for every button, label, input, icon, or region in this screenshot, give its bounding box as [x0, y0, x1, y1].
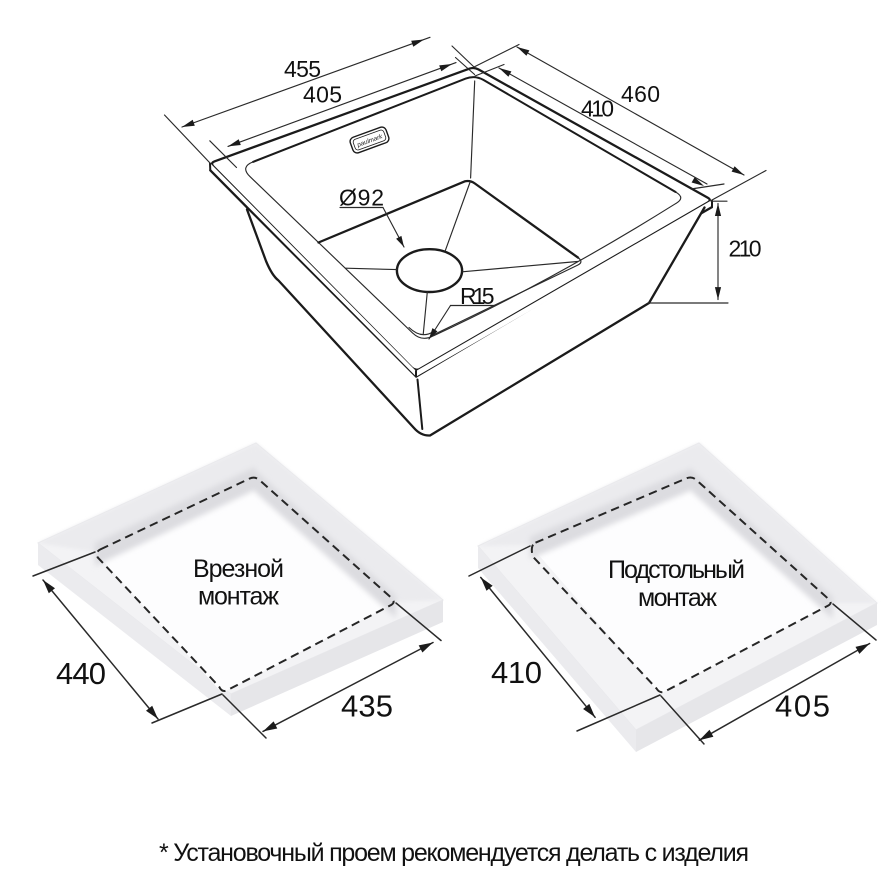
- svg-text:Ø92: Ø92: [339, 185, 384, 211]
- svg-text:210: 210: [729, 236, 762, 262]
- svg-text:R15: R15: [460, 283, 495, 309]
- svg-text:405: 405: [303, 82, 342, 108]
- svg-text:Врезной: Врезной: [193, 555, 284, 583]
- svg-text:монтаж: монтаж: [638, 584, 717, 612]
- svg-text:460: 460: [621, 81, 660, 107]
- svg-text:405: 405: [775, 689, 830, 724]
- svg-text:440: 440: [56, 656, 106, 691]
- svg-text:410: 410: [491, 655, 542, 690]
- svg-text:410: 410: [581, 96, 614, 122]
- svg-text:* Установочный проем рекоменду: * Установочный проем рекомендуется делат…: [159, 839, 749, 867]
- svg-text:435: 435: [341, 689, 393, 724]
- svg-text:455: 455: [284, 56, 321, 82]
- svg-text:Подстольный: Подстольный: [608, 556, 745, 584]
- svg-text:монтаж: монтаж: [198, 583, 279, 611]
